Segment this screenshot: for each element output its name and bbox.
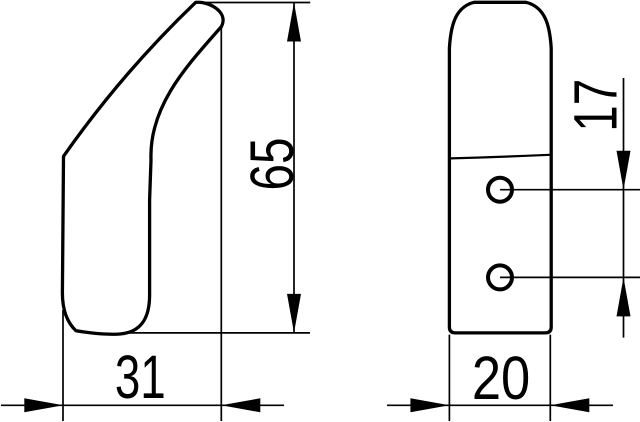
- svg-text:20: 20: [472, 344, 530, 413]
- svg-text:17: 17: [561, 79, 630, 132]
- svg-text:65: 65: [237, 138, 306, 191]
- svg-text:31: 31: [115, 344, 166, 412]
